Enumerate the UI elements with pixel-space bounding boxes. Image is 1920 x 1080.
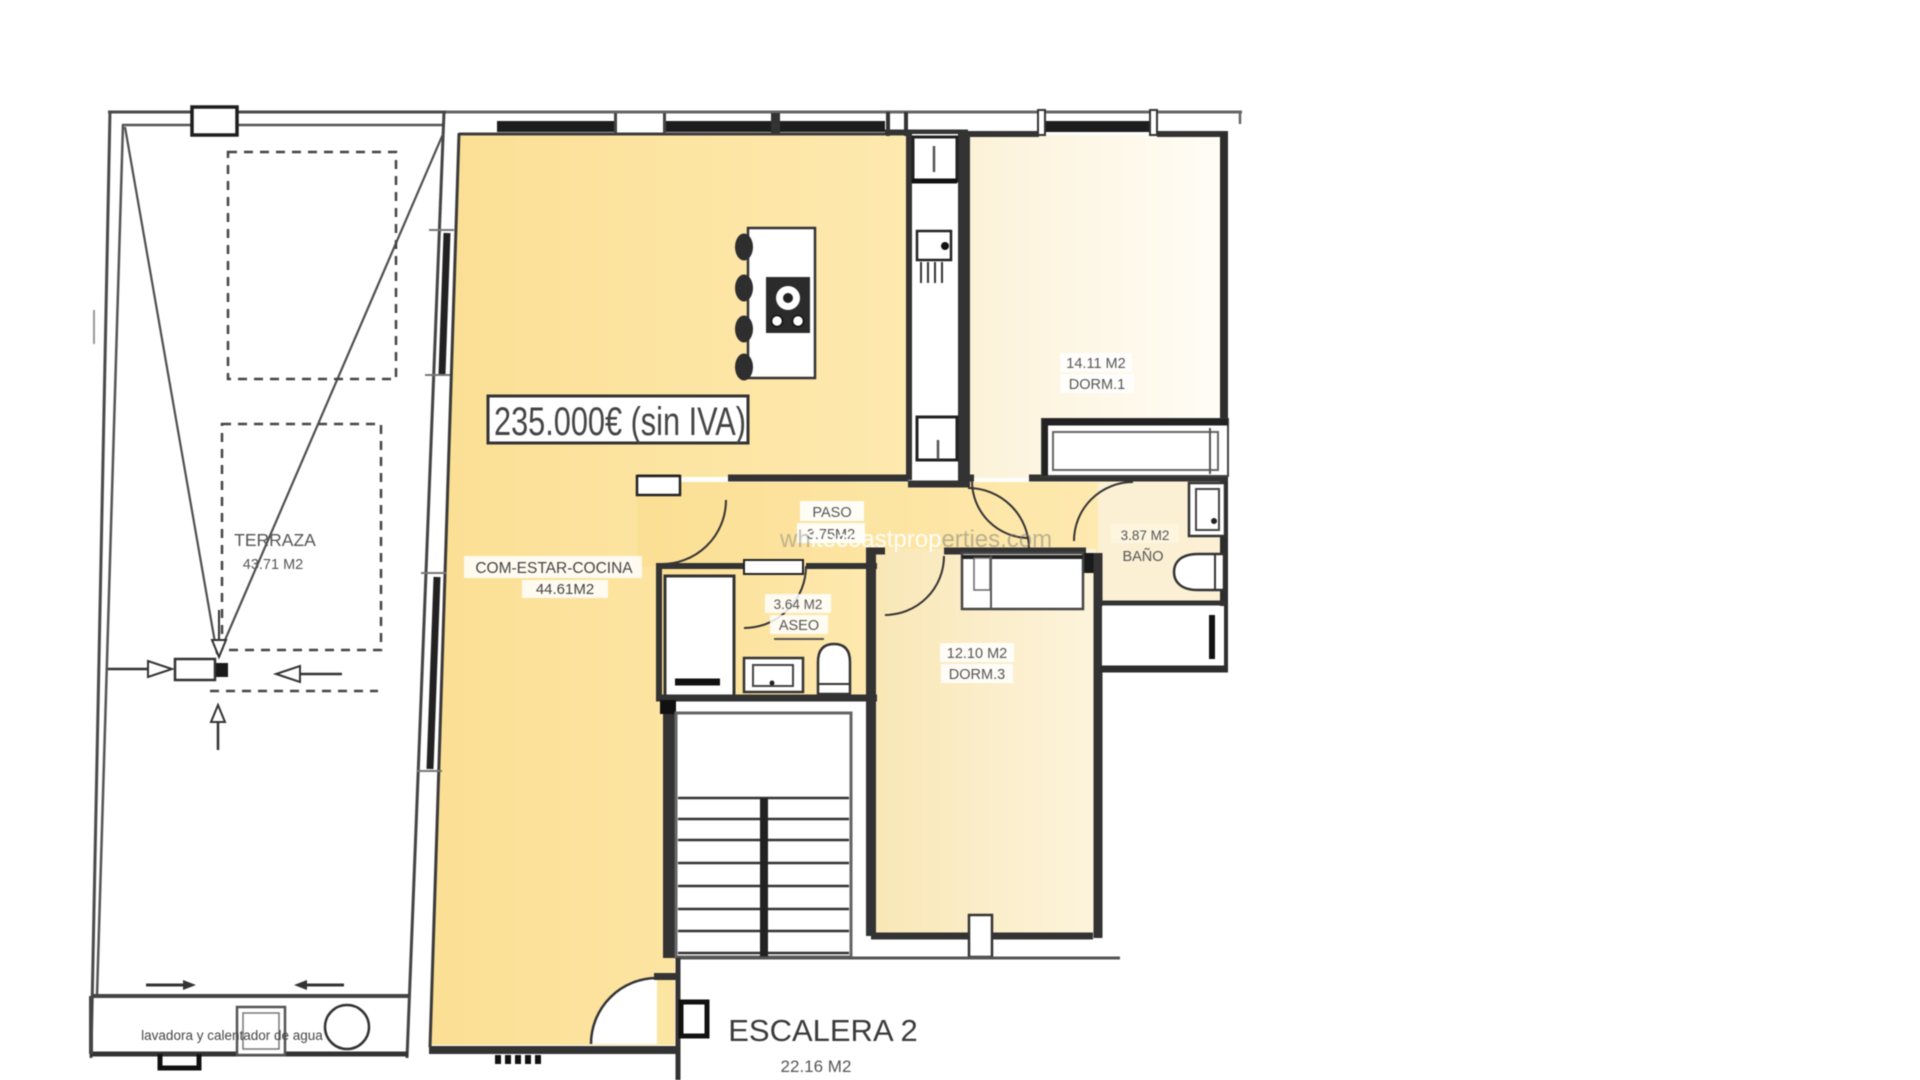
svg-text:PASO: PASO <box>812 505 851 521</box>
svg-text:235.000€ (sin IVA): 235.000€ (sin IVA) <box>494 400 746 444</box>
svg-text:TERRAZA: TERRAZA <box>234 530 316 550</box>
svg-text:COM-ESTAR-COCINA: COM-ESTAR-COCINA <box>475 560 633 577</box>
svg-text:3.87 M2: 3.87 M2 <box>1121 528 1170 543</box>
svg-text:whitecoastproperties.com: whitecoastproperties.com <box>779 526 1052 553</box>
svg-text:3.64 M2: 3.64 M2 <box>774 597 823 612</box>
svg-text:BAÑO: BAÑO <box>1122 548 1163 565</box>
svg-text:lavadora y calentador de agua: lavadora y calentador de agua <box>141 1028 323 1043</box>
svg-text:ESCALERA 2: ESCALERA 2 <box>728 1013 918 1048</box>
svg-text:12.10 M2: 12.10 M2 <box>947 646 1007 662</box>
svg-text:22.16 M2: 22.16 M2 <box>781 1057 852 1076</box>
svg-text:44.61M2: 44.61M2 <box>536 581 594 598</box>
svg-text:DORM.3: DORM.3 <box>949 667 1005 683</box>
svg-text:DORM.1: DORM.1 <box>1069 377 1125 393</box>
svg-text:14.11 M2: 14.11 M2 <box>1066 356 1125 372</box>
svg-text:43.71 M2: 43.71 M2 <box>243 557 303 573</box>
svg-text:ASEO: ASEO <box>779 618 819 634</box>
